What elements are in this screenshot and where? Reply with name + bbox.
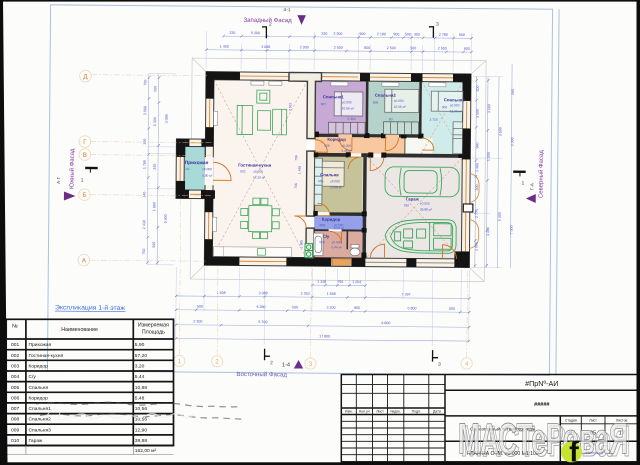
svg-text:3 088: 3 088 bbox=[261, 45, 270, 49]
svg-text:1 204: 1 204 bbox=[352, 280, 361, 284]
svg-text:1: 1 bbox=[522, 180, 525, 186]
svg-text:4-1: 4-1 bbox=[284, 7, 291, 13]
svg-text:3 300: 3 300 bbox=[333, 32, 342, 36]
svg-text:Прихожая: Прихожая bbox=[185, 160, 209, 166]
svg-text:300: 300 bbox=[414, 32, 420, 36]
svg-text:f: f bbox=[569, 437, 579, 465]
svg-text:3 500: 3 500 bbox=[476, 109, 480, 118]
svg-text:500: 500 bbox=[410, 46, 416, 50]
svg-text:5 280: 5 280 bbox=[256, 305, 265, 309]
svg-text:Гостиная-кухня: Гостиная-кухня bbox=[29, 353, 64, 359]
svg-text:002: 002 bbox=[240, 169, 246, 173]
svg-text:1 480: 1 480 bbox=[475, 163, 479, 172]
svg-text:10,88 м²: 10,88 м² bbox=[330, 185, 342, 189]
svg-text:Западный Фасад: Западный Фасад bbox=[243, 17, 292, 24]
svg-text:Коридор: Коридор bbox=[322, 217, 341, 222]
svg-text:Измеряемая: Измеряемая bbox=[138, 323, 169, 329]
svg-text:009: 009 bbox=[11, 427, 19, 433]
svg-text:1-4: 1-4 bbox=[282, 362, 290, 368]
svg-text:010: 010 bbox=[11, 438, 19, 444]
svg-text:12,90: 12,90 bbox=[135, 427, 148, 433]
svg-text:340: 340 bbox=[153, 164, 157, 170]
svg-text:3 430: 3 430 bbox=[486, 227, 490, 236]
svg-text:39,88: 39,88 bbox=[135, 438, 148, 444]
svg-text:-01: -01 bbox=[185, 167, 190, 171]
svg-text:Прихожая: Прихожая bbox=[29, 342, 52, 348]
svg-text:007: 007 bbox=[321, 102, 327, 106]
svg-text:1 400: 1 400 bbox=[220, 45, 229, 49]
svg-text:3 300: 3 300 bbox=[510, 137, 514, 146]
svg-text:2 353: 2 353 bbox=[301, 292, 310, 296]
svg-text:3 088: 3 088 bbox=[259, 291, 268, 295]
svg-text:Г-А: Г-А bbox=[530, 183, 535, 190]
svg-text:4: 4 bbox=[465, 361, 469, 368]
svg-text:Коридор: Коридор bbox=[29, 395, 49, 401]
svg-text:008: 008 bbox=[373, 101, 379, 105]
svg-text:С/у: С/у bbox=[323, 234, 330, 239]
svg-text:±0.000: ±0.000 bbox=[450, 103, 460, 107]
svg-text:500: 500 bbox=[459, 33, 465, 37]
svg-text:1 780: 1 780 bbox=[143, 160, 147, 169]
svg-text:7 000: 7 000 bbox=[510, 225, 514, 234]
svg-text:1 000: 1 000 bbox=[487, 152, 491, 161]
svg-text:3 500: 3 500 bbox=[487, 104, 491, 113]
svg-text:009: 009 bbox=[442, 105, 448, 109]
svg-text:Спальня1: Спальня1 bbox=[29, 406, 52, 412]
svg-text:12,90 м²: 12,90 м² bbox=[450, 109, 462, 113]
svg-text:6 800: 6 800 bbox=[407, 306, 416, 310]
svg-text:500: 500 bbox=[476, 86, 480, 92]
svg-text:003: 003 bbox=[11, 364, 19, 370]
svg-text:МАСТеРоваЯ: МАСТеРоваЯ bbox=[458, 415, 628, 464]
svg-text:2: 2 bbox=[215, 359, 219, 366]
svg-text:005: 005 bbox=[11, 385, 19, 391]
svg-text:Спальня3: Спальня3 bbox=[29, 427, 52, 433]
svg-text:500: 500 bbox=[511, 89, 515, 95]
svg-text:2 300: 2 300 bbox=[193, 319, 202, 323]
svg-text:3 200: 3 200 bbox=[326, 306, 335, 310]
svg-text:10,56 м²: 10,56 м² bbox=[342, 106, 354, 110]
svg-text:1 985: 1 985 bbox=[299, 240, 303, 248]
svg-text:3: 3 bbox=[436, 22, 439, 28]
svg-text:Восточный Фасад: Восточный Фасад bbox=[236, 371, 287, 378]
svg-text:500: 500 bbox=[153, 86, 157, 92]
svg-text:7 397: 7 397 bbox=[402, 292, 411, 296]
svg-text:Дата: Дата bbox=[433, 410, 441, 414]
svg-text:3: 3 bbox=[438, 362, 441, 368]
svg-text:Северный Фасад: Северный Фасад bbox=[537, 150, 544, 198]
svg-text:Наименование: Наименование bbox=[61, 327, 98, 333]
svg-text:Южный Фасад: Южный Фасад bbox=[69, 148, 76, 189]
svg-text:±0.000: ±0.000 bbox=[330, 179, 340, 183]
svg-text:1 658: 1 658 bbox=[327, 292, 336, 296]
svg-text:750: 750 bbox=[143, 80, 147, 86]
svg-text:Спальня: Спальня bbox=[320, 172, 339, 177]
svg-text:003: 003 bbox=[320, 223, 326, 227]
svg-text:5,44: 5,44 bbox=[135, 374, 145, 380]
svg-text:Лист: Лист bbox=[376, 410, 384, 414]
svg-text:±0.000: ±0.000 bbox=[420, 202, 430, 206]
svg-text:Спальня1: Спальня1 bbox=[323, 94, 345, 99]
svg-text:5 300: 5 300 bbox=[153, 117, 157, 126]
svg-text:5,48: 5,48 bbox=[135, 395, 145, 401]
svg-text:5,90: 5,90 bbox=[135, 342, 145, 348]
svg-text:004: 004 bbox=[320, 240, 326, 244]
svg-text:Гараж: Гараж bbox=[29, 438, 44, 444]
svg-text:57,20: 57,20 bbox=[135, 353, 148, 359]
svg-text:1: 1 bbox=[81, 178, 84, 184]
svg-text:2 180: 2 180 bbox=[377, 32, 386, 36]
svg-text:2 500: 2 500 bbox=[334, 46, 343, 50]
svg-text:Площадь: Площадь bbox=[142, 330, 165, 336]
svg-text:Спальня3: Спальня3 bbox=[444, 97, 466, 102]
svg-text:А-Г: А-Г bbox=[56, 176, 61, 184]
svg-text:3 088: 3 088 bbox=[165, 114, 169, 123]
svg-text:3 500: 3 500 bbox=[498, 127, 502, 136]
svg-text:В: В bbox=[83, 152, 87, 159]
svg-text:900: 900 bbox=[354, 306, 360, 310]
svg-text:5,90 м²: 5,90 м² bbox=[202, 174, 212, 178]
svg-text:500: 500 bbox=[292, 305, 298, 309]
svg-text:002: 002 bbox=[11, 353, 19, 359]
svg-text:±0.000: ±0.000 bbox=[342, 100, 352, 104]
svg-text:3 088: 3 088 bbox=[143, 106, 147, 115]
svg-text:6 300: 6 300 bbox=[498, 212, 502, 221]
svg-text:1 880: 1 880 bbox=[152, 202, 156, 211]
svg-text:340: 340 bbox=[142, 192, 146, 198]
svg-text:008: 008 bbox=[11, 417, 19, 423]
svg-text:Д: Д bbox=[83, 73, 88, 80]
svg-text:#ПрNº-АИ: #ПрNº-АИ bbox=[525, 379, 558, 388]
svg-text:№: № bbox=[12, 324, 18, 330]
svg-text:500: 500 bbox=[152, 242, 156, 248]
svg-text:±0.000: ±0.000 bbox=[332, 240, 342, 244]
svg-text:006: 006 bbox=[11, 395, 19, 401]
svg-text:60: 60 bbox=[389, 117, 393, 121]
svg-text:№док.: №док. bbox=[390, 410, 400, 414]
svg-text:500: 500 bbox=[405, 32, 411, 36]
svg-text:±0.000: ±0.000 bbox=[394, 99, 404, 103]
svg-text:10,88: 10,88 bbox=[135, 385, 148, 391]
svg-text:500: 500 bbox=[449, 307, 455, 311]
svg-text:5 700: 5 700 bbox=[258, 320, 267, 324]
svg-text:Кол.уч: Кол.уч bbox=[359, 410, 370, 414]
svg-text:1 248: 1 248 bbox=[317, 280, 326, 284]
svg-text:2: 2 bbox=[270, 360, 273, 366]
svg-text:10,56 м²: 10,56 м² bbox=[394, 105, 406, 109]
svg-text:39,88 м²: 39,88 м² bbox=[420, 208, 432, 212]
svg-text:2 500: 2 500 bbox=[438, 46, 447, 50]
svg-text:3 720: 3 720 bbox=[429, 118, 437, 122]
svg-text:2 000: 2 000 bbox=[300, 45, 309, 49]
svg-text:мастера.ру: мастера.ру bbox=[585, 451, 604, 455]
svg-text:9 800: 9 800 bbox=[164, 214, 168, 223]
svg-text:162,00 м²: 162,00 м² bbox=[135, 448, 157, 454]
svg-text:004: 004 bbox=[11, 374, 19, 380]
svg-text:3 522: 3 522 bbox=[288, 103, 292, 111]
svg-text:Спальня: Спальня bbox=[29, 385, 49, 391]
svg-text:900: 900 bbox=[393, 32, 399, 36]
svg-text:755: 755 bbox=[337, 280, 343, 284]
svg-text:17 800: 17 800 bbox=[319, 334, 330, 338]
svg-text:1 448: 1 448 bbox=[298, 166, 302, 174]
svg-text:Коридор: Коридор bbox=[29, 364, 49, 370]
svg-text:3,20: 3,20 bbox=[135, 364, 145, 370]
svg-text:Изм.: Изм. bbox=[345, 410, 353, 414]
svg-text:5 300: 5 300 bbox=[251, 31, 260, 35]
svg-text:330: 330 bbox=[321, 32, 327, 36]
svg-text:2 430: 2 430 bbox=[142, 220, 146, 229]
svg-text:2 775: 2 775 bbox=[475, 209, 479, 218]
svg-text:006: 006 bbox=[324, 144, 330, 148]
svg-text:750: 750 bbox=[142, 249, 146, 255]
svg-text:007: 007 bbox=[11, 406, 19, 412]
svg-text:10,56: 10,56 bbox=[135, 406, 148, 412]
svg-text:5,44 м²: 5,44 м² bbox=[331, 245, 341, 249]
svg-text:756: 756 bbox=[294, 155, 298, 161]
svg-text:800: 800 bbox=[364, 46, 370, 50]
svg-text:2 780: 2 780 bbox=[439, 33, 448, 37]
svg-text:010: 010 bbox=[404, 203, 410, 207]
svg-text:Спальня2: Спальня2 bbox=[29, 417, 52, 423]
svg-text:5,48 м²: 5,48 м² bbox=[341, 149, 351, 153]
svg-text:Г: Г bbox=[83, 139, 87, 146]
svg-text:#####: ##### bbox=[534, 402, 549, 408]
svg-text:300: 300 bbox=[475, 185, 479, 191]
svg-text:2 500: 2 500 bbox=[387, 46, 396, 50]
svg-text:5 463: 5 463 bbox=[347, 117, 355, 121]
svg-text:3,20 м²: 3,20 м² bbox=[334, 226, 344, 230]
svg-text:600: 600 bbox=[464, 47, 470, 51]
svg-text:500: 500 bbox=[197, 305, 203, 309]
svg-text:Спальня2: Спальня2 bbox=[375, 93, 397, 98]
svg-text:±0.000: ±0.000 bbox=[202, 167, 212, 171]
svg-text:Б: Б bbox=[82, 192, 86, 199]
svg-text:980: 980 bbox=[475, 143, 479, 149]
svg-text:9 800: 9 800 bbox=[381, 321, 390, 325]
svg-text:±0.000: ±0.000 bbox=[253, 170, 263, 174]
svg-text:300: 300 bbox=[143, 139, 147, 145]
svg-text:57,20 м²: 57,20 м² bbox=[253, 176, 265, 180]
svg-text:330: 330 bbox=[229, 31, 235, 35]
svg-text:Гостиная-кухня: Гостиная-кухня bbox=[238, 162, 271, 167]
svg-text:С/у: С/у bbox=[29, 374, 37, 380]
svg-text:1 000: 1 000 bbox=[474, 242, 478, 251]
svg-text:3: 3 bbox=[309, 361, 313, 368]
svg-text:005: 005 bbox=[318, 179, 324, 183]
svg-text:756: 756 bbox=[294, 183, 298, 189]
svg-text:Экспликация 1-й этаж: Экспликация 1-й этаж bbox=[55, 303, 126, 312]
svg-text:1: 1 bbox=[177, 358, 181, 365]
svg-text:900: 900 bbox=[359, 32, 365, 36]
svg-text:001: 001 bbox=[11, 342, 19, 348]
svg-text:±0.000: ±0.000 bbox=[341, 144, 351, 148]
svg-text:Гараж: Гараж bbox=[406, 196, 420, 201]
svg-text:Коридор: Коридор bbox=[327, 137, 346, 142]
svg-text:Подп.: Подп. bbox=[412, 410, 421, 414]
